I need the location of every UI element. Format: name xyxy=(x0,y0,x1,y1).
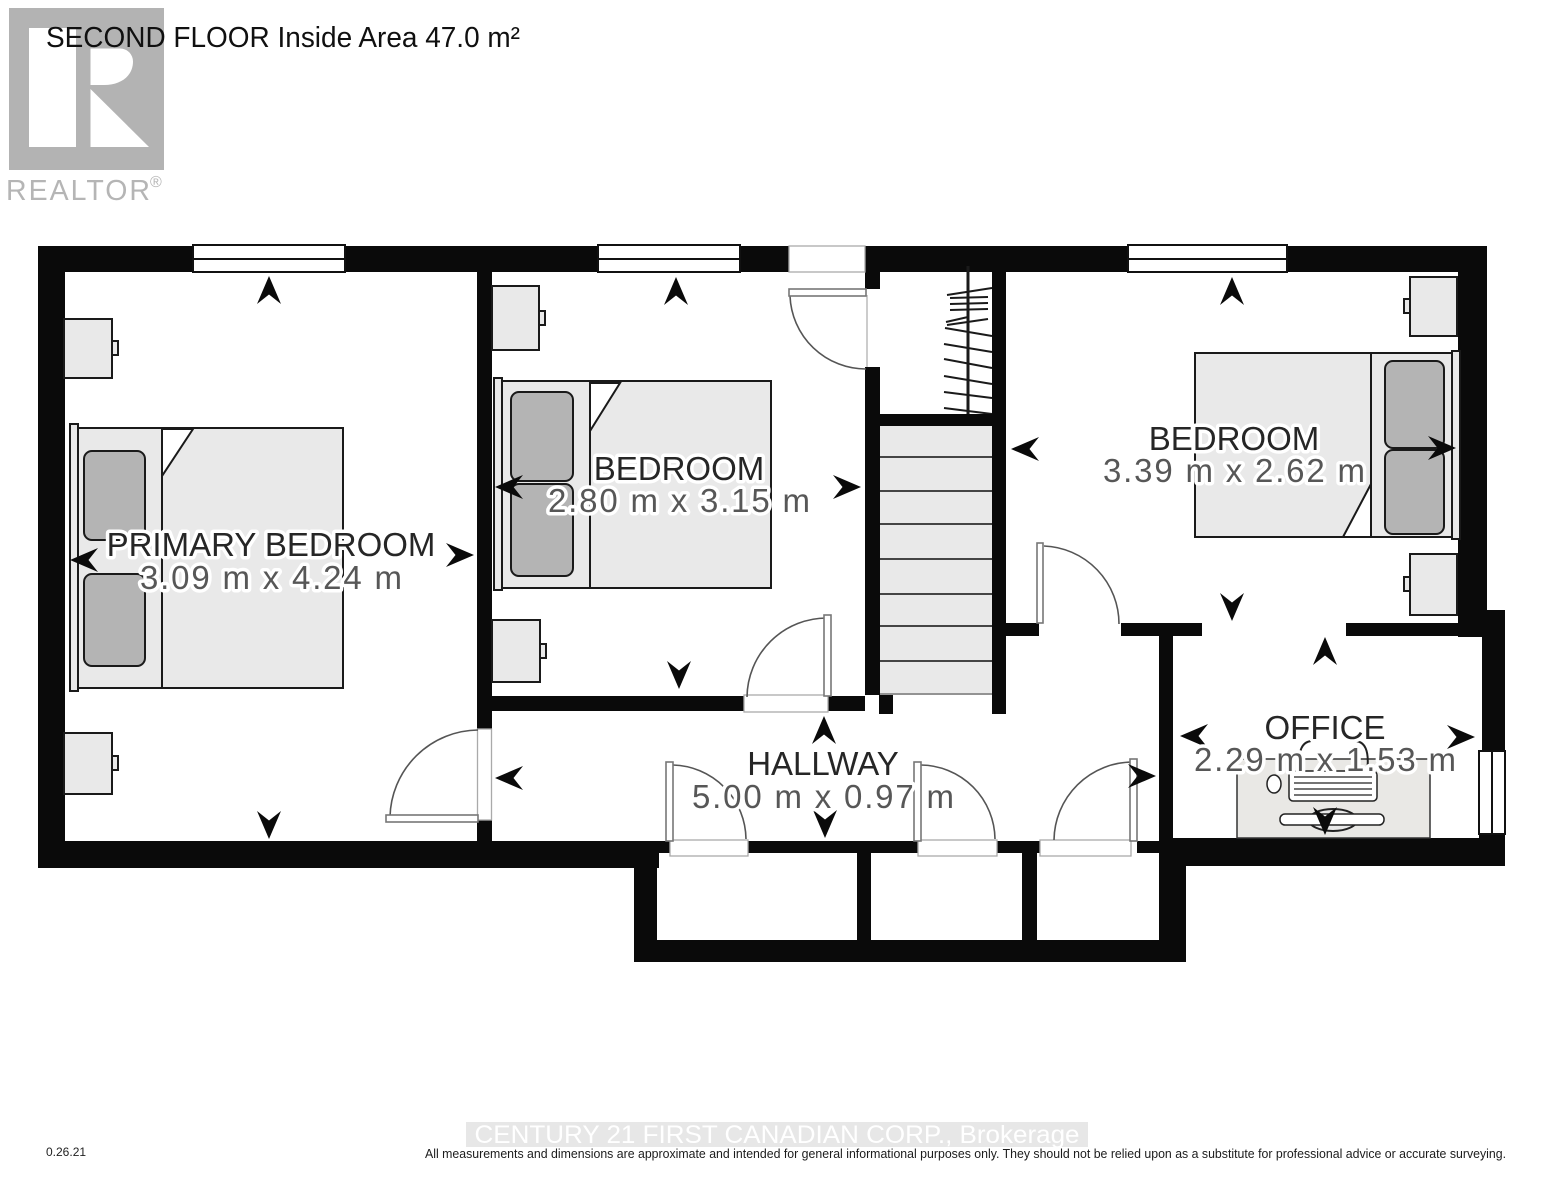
svg-text:5.00 m x 0.97 m: 5.00 m x 0.97 m xyxy=(692,778,954,815)
svg-text:0.26.21: 0.26.21 xyxy=(46,1145,86,1159)
svg-text:CENTURY 21 FIRST CANADIAN CORP: CENTURY 21 FIRST CANADIAN CORP., Brokera… xyxy=(475,1121,1080,1149)
svg-text:3.39 m x 2.62 m: 3.39 m x 2.62 m xyxy=(1103,452,1365,489)
svg-text:REALTOR: REALTOR xyxy=(6,175,152,207)
svg-text:2.29 m x 1.53 m: 2.29 m x 1.53 m xyxy=(1194,741,1456,778)
svg-text:All measurements and dimension: All measurements and dimensions are appr… xyxy=(425,1146,1506,1161)
svg-text:SECOND FLOOR Inside Area 47.0: SECOND FLOOR Inside Area 47.0 m² xyxy=(46,22,520,54)
svg-text:3.09 m x 4.24 m: 3.09 m x 4.24 m xyxy=(140,559,402,596)
svg-text:2.80 m x 3.15 m: 2.80 m x 3.15 m xyxy=(548,482,810,519)
svg-text:HALLWAY: HALLWAY xyxy=(747,745,899,782)
svg-text:PRIMARY BEDROOM: PRIMARY BEDROOM xyxy=(107,526,436,563)
svg-text:®: ® xyxy=(150,174,162,191)
